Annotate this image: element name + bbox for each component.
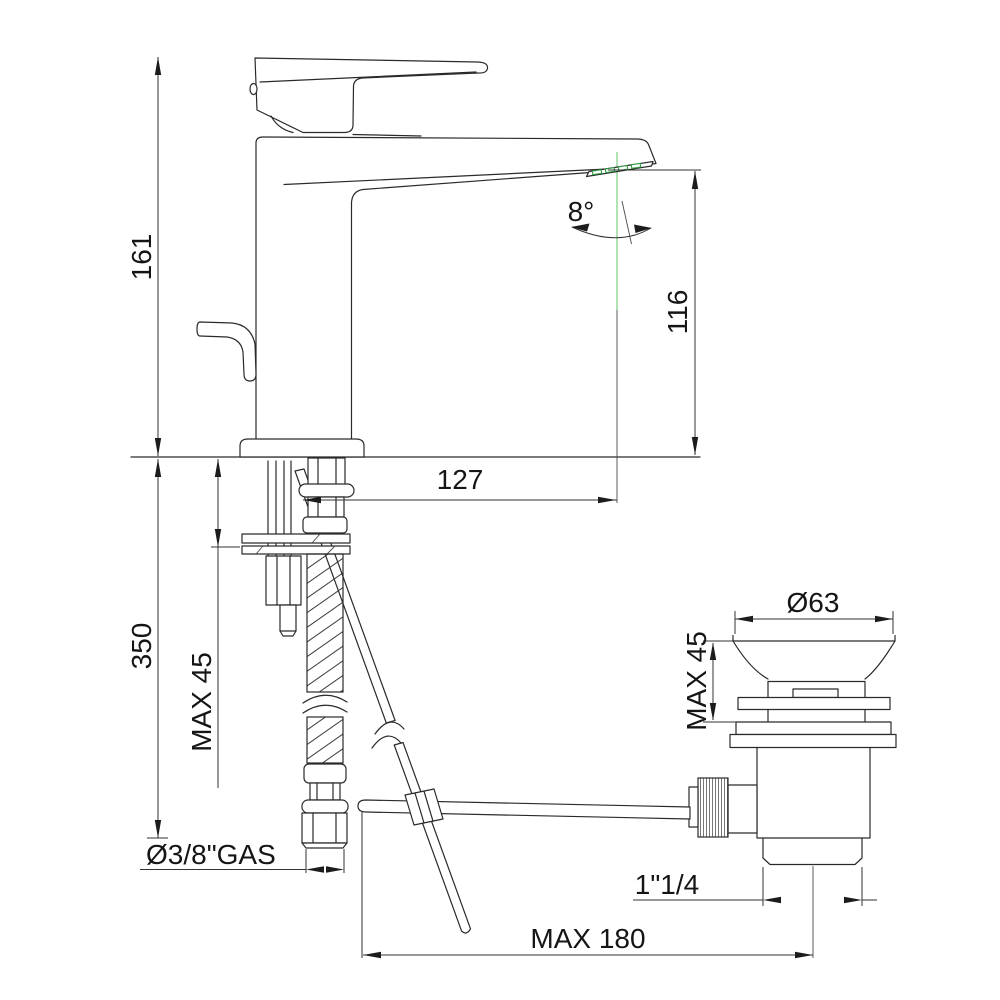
handle-pin: [250, 84, 257, 95]
base-plate: [240, 439, 364, 457]
mounting-and-supply: [242, 458, 354, 848]
faucet-body: [197, 58, 656, 457]
drain-assembly: [689, 636, 896, 959]
aerator-slot: [592, 170, 601, 175]
knurled-nut: [698, 778, 728, 837]
stud-nut: [266, 556, 301, 605]
technical-drawing-page: 161 350 MAX 45 127 116 8° Ø63: [0, 0, 1000, 1000]
hose-hex-nut: [302, 813, 347, 843]
body-seam: [353, 135, 421, 137]
lift-rod-knob: [197, 322, 256, 381]
supply-hose: [302, 554, 348, 848]
dim-label-max45-left: MAX 45: [186, 652, 217, 752]
rod-clamp: [405, 789, 443, 825]
dim-label-116: 116: [662, 290, 693, 335]
drain-flange-top: [733, 636, 895, 642]
dimension-below-deck: 350: [126, 459, 168, 838]
dim-label-8deg: 8°: [568, 196, 595, 227]
dimension-spout-height: 116: [608, 170, 701, 455]
drain-gasket-2: [730, 735, 896, 748]
dimension-total-height: 161: [126, 57, 161, 456]
drain-thread: [763, 838, 862, 865]
rod-socket-block: [728, 785, 757, 833]
dimension-waste-max-thickness: MAX 45: [681, 631, 736, 731]
dim-label-max180: MAX 180: [530, 923, 645, 954]
dim-label-350: 350: [126, 623, 157, 670]
faucet-dimension-drawing: 161 350 MAX 45 127 116 8° Ø63: [0, 0, 1000, 1000]
dimension-max-mounting-thickness: MAX 45: [186, 459, 240, 788]
aerator-slot: [631, 163, 640, 168]
plug-stem: [793, 689, 838, 698]
faucet-handle: [255, 58, 488, 133]
drain-body: [757, 748, 870, 839]
dimension-waste-flange-diameter: Ø63: [735, 587, 893, 634]
dim-label-o63: Ø63: [787, 587, 840, 618]
hose-crimp: [303, 517, 347, 533]
dimension-spout-reach: 127: [303, 464, 617, 503]
drain-washer-top: [738, 698, 890, 710]
hose-washer: [302, 800, 348, 813]
dim-label-1-1-4: 1"1/4: [635, 869, 699, 900]
aerator: [587, 152, 654, 503]
dimension-spout-angle: 8°: [568, 196, 652, 244]
stud-tip: [280, 605, 296, 631]
dim-label-127: 127: [437, 464, 484, 495]
supply-shank: [299, 458, 354, 533]
dimension-waste-thread: 1"1/4: [633, 867, 877, 906]
drain-funnel: [733, 641, 895, 682]
dim-label-max45-drain: MAX 45: [681, 631, 712, 731]
horizontal-link-rod: [358, 789, 690, 825]
dim-label-161: 161: [126, 234, 157, 281]
mounting-plates: [242, 534, 350, 554]
dim-label-o38gas: Ø3/8"GAS: [146, 839, 276, 870]
hose-end-flange: [304, 764, 346, 783]
drain-gasket-1: [736, 722, 891, 735]
hose-collar: [299, 484, 354, 497]
hose-break-mark: [303, 695, 347, 713]
